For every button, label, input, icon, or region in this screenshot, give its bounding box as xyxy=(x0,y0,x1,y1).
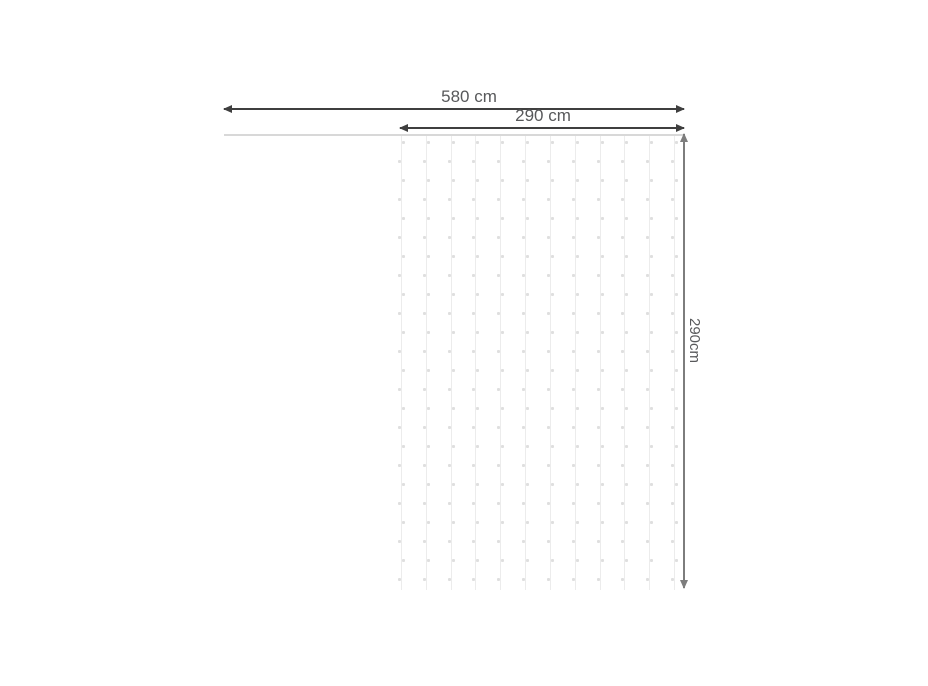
light-dot xyxy=(427,521,430,524)
light-dot xyxy=(398,236,401,239)
light-dot xyxy=(402,141,405,144)
light-dot xyxy=(671,198,674,201)
light-dot xyxy=(526,179,529,182)
light-dot xyxy=(572,388,575,391)
light-dot xyxy=(650,331,653,334)
light-dot xyxy=(497,426,500,429)
light-dot xyxy=(646,426,649,429)
light-dot xyxy=(476,141,479,144)
light-dot xyxy=(476,445,479,448)
light-dot xyxy=(476,293,479,296)
light-dot xyxy=(675,141,678,144)
light-dot xyxy=(675,255,678,258)
light-dot xyxy=(522,540,525,543)
light-dot xyxy=(423,274,426,277)
light-dot xyxy=(452,521,455,524)
light-dot xyxy=(625,179,628,182)
light-dot xyxy=(497,198,500,201)
light-dot xyxy=(398,312,401,315)
light-dot xyxy=(576,255,579,258)
light-dot xyxy=(576,293,579,296)
light-dot xyxy=(427,559,430,562)
light-dot xyxy=(675,559,678,562)
light-dot xyxy=(526,445,529,448)
light-dot xyxy=(597,578,600,581)
light-dot xyxy=(398,388,401,391)
light-dot xyxy=(497,312,500,315)
light-dot xyxy=(501,331,504,334)
light-dot xyxy=(522,312,525,315)
light-dot xyxy=(452,217,455,220)
light-dot xyxy=(448,350,451,353)
light-dot xyxy=(551,179,554,182)
light-dot xyxy=(452,293,455,296)
light-dot xyxy=(572,502,575,505)
light-dot xyxy=(452,369,455,372)
light-dot xyxy=(650,255,653,258)
light-dot xyxy=(572,350,575,353)
light-dot xyxy=(547,464,550,467)
light-dot xyxy=(476,255,479,258)
light-dot xyxy=(547,236,550,239)
light-dot xyxy=(522,160,525,163)
light-dot xyxy=(452,141,455,144)
light-dot xyxy=(671,388,674,391)
light-dot xyxy=(398,578,401,581)
light-dot xyxy=(402,407,405,410)
light-dot xyxy=(452,179,455,182)
light-dot xyxy=(650,293,653,296)
light-dot xyxy=(423,502,426,505)
light-dot xyxy=(650,407,653,410)
light-dot xyxy=(398,464,401,467)
light-dot xyxy=(601,331,604,334)
light-dot xyxy=(650,559,653,562)
light-dot xyxy=(402,483,405,486)
light-dot xyxy=(497,578,500,581)
light-dot xyxy=(522,236,525,239)
light-dot xyxy=(476,179,479,182)
light-dot xyxy=(597,350,600,353)
light-dot xyxy=(522,464,525,467)
light-dot xyxy=(402,521,405,524)
light-dot xyxy=(572,426,575,429)
light-dot xyxy=(572,540,575,543)
diagram-canvas: 580 cm 290 cm 290cm xyxy=(0,0,928,686)
light-dot xyxy=(625,483,628,486)
light-dot xyxy=(452,407,455,410)
light-dot xyxy=(522,426,525,429)
light-dot xyxy=(452,483,455,486)
light-dot xyxy=(597,236,600,239)
light-dot xyxy=(572,578,575,581)
light-dot xyxy=(448,540,451,543)
light-dot xyxy=(402,179,405,182)
light-dot xyxy=(427,141,430,144)
light-dot xyxy=(646,578,649,581)
light-dot xyxy=(497,160,500,163)
light-dot xyxy=(646,502,649,505)
light-dot xyxy=(497,388,500,391)
light-dot xyxy=(398,160,401,163)
light-dot xyxy=(501,255,504,258)
light-dot xyxy=(526,521,529,524)
light-dot xyxy=(601,407,604,410)
light-dot xyxy=(547,578,550,581)
light-dot xyxy=(551,559,554,562)
total-width-arrow xyxy=(224,108,684,110)
light-dot xyxy=(601,293,604,296)
light-dot xyxy=(551,445,554,448)
light-dot xyxy=(601,559,604,562)
light-dot xyxy=(597,540,600,543)
light-dot xyxy=(452,255,455,258)
light-dot xyxy=(497,540,500,543)
light-dot xyxy=(501,217,504,220)
light-dot xyxy=(423,426,426,429)
light-dot xyxy=(576,141,579,144)
light-dot xyxy=(551,217,554,220)
light-dot xyxy=(522,388,525,391)
light-dot xyxy=(601,179,604,182)
light-dot xyxy=(448,160,451,163)
light-dot xyxy=(427,217,430,220)
light-dot xyxy=(576,331,579,334)
light-dot xyxy=(601,445,604,448)
light-dot xyxy=(646,160,649,163)
light-dot xyxy=(423,464,426,467)
light-dot xyxy=(576,369,579,372)
light-dot xyxy=(448,578,451,581)
light-dot xyxy=(646,274,649,277)
light-dot xyxy=(576,217,579,220)
light-dot xyxy=(601,141,604,144)
light-dot xyxy=(398,198,401,201)
light-dot xyxy=(646,198,649,201)
light-dot xyxy=(497,350,500,353)
light-dot xyxy=(526,217,529,220)
light-dot xyxy=(427,293,430,296)
light-dot xyxy=(625,255,628,258)
light-dot xyxy=(547,540,550,543)
light-dot xyxy=(452,331,455,334)
light-dot xyxy=(402,331,405,334)
light-dot xyxy=(625,217,628,220)
light-dot xyxy=(427,331,430,334)
light-dot xyxy=(547,312,550,315)
light-dot xyxy=(625,369,628,372)
curtain-width-arrow xyxy=(400,127,684,129)
light-dot xyxy=(402,217,405,220)
light-dot xyxy=(398,350,401,353)
light-dot xyxy=(423,198,426,201)
light-dot xyxy=(625,521,628,524)
light-dot xyxy=(402,293,405,296)
light-dot xyxy=(547,198,550,201)
light-dot xyxy=(572,312,575,315)
light-dot xyxy=(427,483,430,486)
light-dot xyxy=(675,293,678,296)
light-dot xyxy=(448,236,451,239)
light-dot xyxy=(427,179,430,182)
light-dot xyxy=(572,198,575,201)
light-dot xyxy=(448,388,451,391)
light-dot xyxy=(448,464,451,467)
light-dot xyxy=(572,274,575,277)
light-dot xyxy=(452,559,455,562)
light-dot xyxy=(576,445,579,448)
light-dot xyxy=(671,350,674,353)
light-dot xyxy=(547,388,550,391)
light-dot xyxy=(448,426,451,429)
light-dot xyxy=(476,331,479,334)
light-dot xyxy=(601,369,604,372)
light-dot xyxy=(398,426,401,429)
light-dot xyxy=(427,445,430,448)
light-dot xyxy=(646,388,649,391)
light-dot xyxy=(625,407,628,410)
light-dot xyxy=(501,407,504,410)
light-dot xyxy=(476,483,479,486)
total-width-label: 580 cm xyxy=(404,87,534,107)
light-dot xyxy=(675,521,678,524)
light-dot xyxy=(423,236,426,239)
light-dot xyxy=(522,198,525,201)
light-dot xyxy=(646,236,649,239)
curtain xyxy=(400,136,676,590)
light-dot xyxy=(671,426,674,429)
light-dot xyxy=(551,369,554,372)
light-dot xyxy=(650,521,653,524)
light-dot xyxy=(526,407,529,410)
light-dot xyxy=(547,160,550,163)
light-dot xyxy=(522,350,525,353)
light-dot xyxy=(675,331,678,334)
light-dot xyxy=(427,369,430,372)
light-dot xyxy=(650,141,653,144)
light-dot xyxy=(476,521,479,524)
light-dot xyxy=(547,350,550,353)
light-dot xyxy=(597,198,600,201)
light-dot xyxy=(646,464,649,467)
light-dot xyxy=(423,350,426,353)
light-dot xyxy=(448,274,451,277)
light-dot xyxy=(476,369,479,372)
light-dot xyxy=(526,141,529,144)
light-dot xyxy=(522,274,525,277)
light-dot xyxy=(526,369,529,372)
light-dot xyxy=(398,540,401,543)
light-dot xyxy=(402,369,405,372)
light-dot xyxy=(501,483,504,486)
light-dot xyxy=(448,198,451,201)
light-dot xyxy=(671,464,674,467)
light-dot xyxy=(497,274,500,277)
light-dot xyxy=(526,483,529,486)
light-dot xyxy=(576,521,579,524)
light-dot xyxy=(625,293,628,296)
light-dot xyxy=(646,540,649,543)
light-dot xyxy=(646,350,649,353)
light-dot xyxy=(551,331,554,334)
light-dot xyxy=(671,540,674,543)
light-dot xyxy=(597,312,600,315)
light-dot xyxy=(551,141,554,144)
light-dot xyxy=(526,255,529,258)
light-dot xyxy=(476,559,479,562)
light-dot xyxy=(650,369,653,372)
light-dot xyxy=(625,141,628,144)
light-dot xyxy=(597,426,600,429)
light-dot xyxy=(398,274,401,277)
light-dot xyxy=(671,236,674,239)
light-dot xyxy=(671,312,674,315)
curtain-height-label: 290cm xyxy=(687,311,701,371)
light-dot xyxy=(625,559,628,562)
light-dot xyxy=(547,274,550,277)
light-dot xyxy=(671,502,674,505)
light-dot xyxy=(671,160,674,163)
light-dot xyxy=(423,160,426,163)
light-dot xyxy=(675,407,678,410)
light-dot xyxy=(551,483,554,486)
light-dot xyxy=(423,578,426,581)
light-dot xyxy=(650,179,653,182)
light-dot xyxy=(646,312,649,315)
light-dot xyxy=(476,217,479,220)
light-dot xyxy=(597,388,600,391)
light-dot xyxy=(522,502,525,505)
light-dot xyxy=(675,217,678,220)
light-dot xyxy=(625,445,628,448)
light-dot xyxy=(601,483,604,486)
light-dot xyxy=(601,217,604,220)
light-dot xyxy=(675,179,678,182)
light-dot xyxy=(526,331,529,334)
light-dot xyxy=(597,464,600,467)
light-dot xyxy=(576,407,579,410)
light-dot xyxy=(497,236,500,239)
light-dot xyxy=(402,445,405,448)
light-dot xyxy=(576,179,579,182)
light-dot xyxy=(526,559,529,562)
light-dot xyxy=(572,160,575,163)
light-dot xyxy=(671,274,674,277)
light-dot xyxy=(476,407,479,410)
light-dot xyxy=(501,293,504,296)
light-dot xyxy=(650,217,653,220)
light-dot xyxy=(675,483,678,486)
light-dot xyxy=(576,559,579,562)
light-dot xyxy=(551,255,554,258)
light-dot xyxy=(448,312,451,315)
light-dot xyxy=(572,464,575,467)
light-dot xyxy=(522,578,525,581)
light-dot xyxy=(427,407,430,410)
light-dot xyxy=(501,369,504,372)
light-dot xyxy=(497,464,500,467)
light-dot xyxy=(423,312,426,315)
light-dot xyxy=(501,521,504,524)
light-dot xyxy=(547,426,550,429)
light-dot xyxy=(452,445,455,448)
light-dot xyxy=(398,502,401,505)
light-dot xyxy=(572,236,575,239)
light-dot xyxy=(671,578,674,581)
light-dot xyxy=(497,502,500,505)
light-dot xyxy=(501,141,504,144)
curtain-height-arrow xyxy=(683,134,685,588)
light-dot xyxy=(650,445,653,448)
light-dot xyxy=(448,502,451,505)
light-dot xyxy=(675,369,678,372)
light-dot xyxy=(423,540,426,543)
light-dot xyxy=(597,274,600,277)
light-dot xyxy=(576,483,579,486)
light-dot xyxy=(650,483,653,486)
light-dot xyxy=(427,255,430,258)
light-dot xyxy=(597,502,600,505)
light-dot xyxy=(501,179,504,182)
light-dot xyxy=(551,293,554,296)
light-dot xyxy=(601,521,604,524)
light-dot xyxy=(423,388,426,391)
light-dot xyxy=(601,255,604,258)
light-dot xyxy=(597,160,600,163)
light-dot xyxy=(551,407,554,410)
light-dot xyxy=(526,293,529,296)
light-dot xyxy=(402,559,405,562)
light-dot xyxy=(402,255,405,258)
light-dot xyxy=(501,559,504,562)
light-dot xyxy=(625,331,628,334)
light-dot xyxy=(675,445,678,448)
light-dot xyxy=(501,445,504,448)
light-dot xyxy=(551,521,554,524)
light-dot xyxy=(547,502,550,505)
curtain-width-label: 290 cm xyxy=(478,106,608,126)
